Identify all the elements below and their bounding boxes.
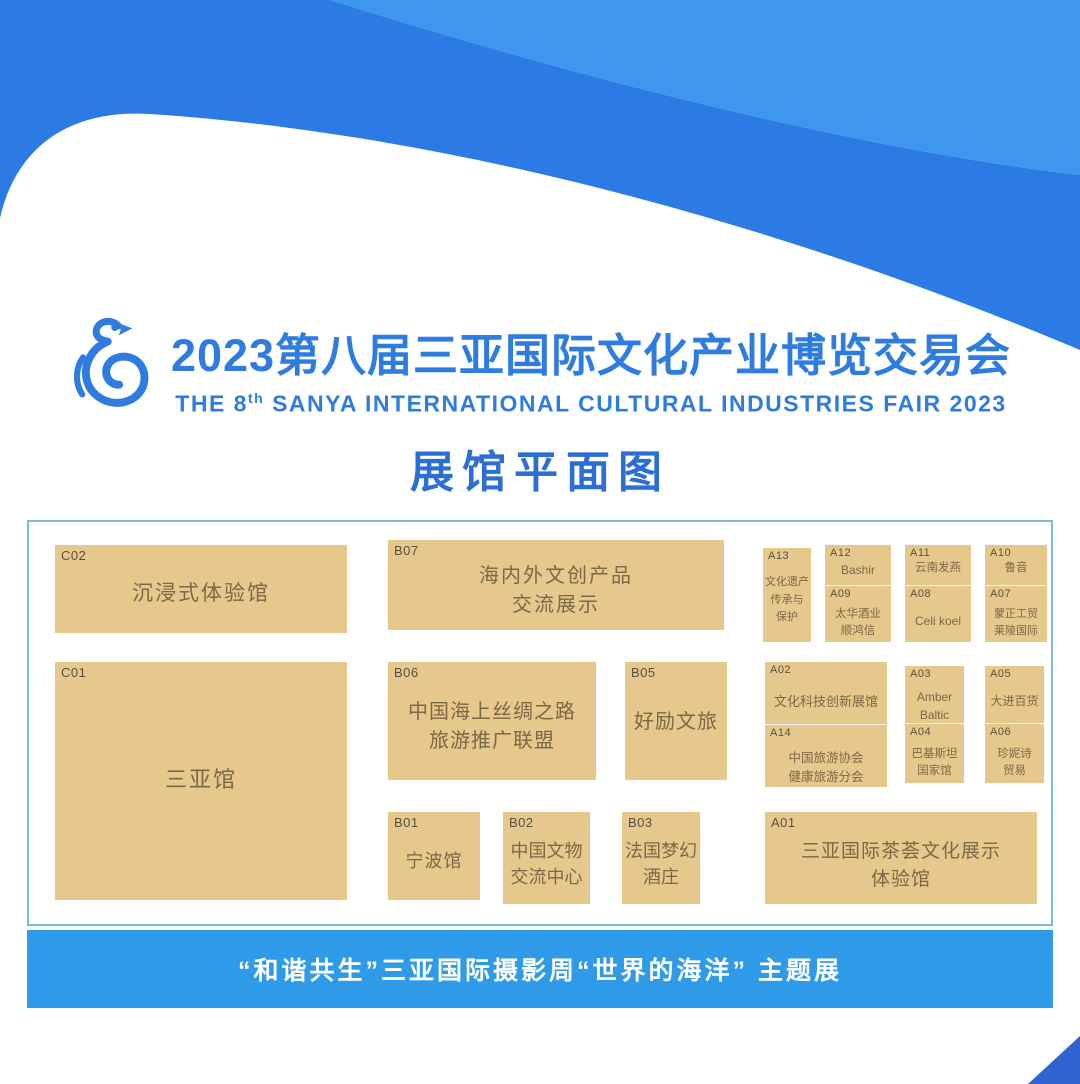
booth-name: 中国旅游协会 健康旅游分会	[765, 749, 887, 787]
booth-code: C02	[61, 548, 86, 563]
booth-name: 法国梦幻 酒庄	[622, 838, 700, 890]
booth-name: 鲁音	[985, 560, 1047, 577]
booth-code: B03	[628, 815, 653, 830]
booth-name: Celi koel	[905, 612, 971, 630]
fair-title-cn: 2023第八届三亚国际文化产业博览交易会	[171, 319, 1011, 384]
booth-b07: B07 海内外文创产品 交流展示	[388, 540, 724, 630]
booth-name: 海内外文创产品 交流展示	[388, 562, 724, 620]
booth-code: A08	[910, 588, 931, 600]
fair-title-en-rest: SANYA INTERNATIONAL CULTURAL INDUSTRIES …	[264, 390, 1007, 416]
booth-name: Bashir	[825, 561, 891, 579]
booth-name: 好励文旅	[625, 708, 727, 737]
booth-column-a10-a07: A10 鲁音 A07 蒙正工贸 莱陵国际	[985, 545, 1047, 642]
booth-name: Amber Baltic	[905, 688, 964, 724]
booth-code: B05	[631, 665, 656, 680]
booth-name: 云南发燕	[905, 560, 971, 577]
booth-column-a11-a08: A11 云南发燕 A08 Celi koel	[905, 545, 971, 642]
booth-code: A12	[830, 547, 851, 559]
booth-name: 蒙正工贸 莱陵国际	[985, 606, 1047, 639]
booth-code: B02	[509, 815, 534, 830]
theme-exhibition-banner: “和谐共生”三亚国际摄影周“世界的海洋” 主题展	[27, 930, 1053, 1008]
booth-code: A06	[990, 726, 1011, 738]
booth-b05: B05 好励文旅	[625, 662, 727, 780]
booth-code: A01	[771, 815, 796, 830]
booth-column-a12-a09: A12 Bashir A09 太华酒业 顺鸿信	[825, 545, 891, 642]
booth-name: 沉浸式体验馆	[55, 579, 347, 609]
corner-accent-triangle	[1028, 1036, 1080, 1084]
booth-a14: A14 中国旅游协会 健康旅游分会	[765, 724, 887, 787]
booth-a01: A01 三亚国际茶荟文化展示 体验馆	[765, 812, 1037, 904]
fair-title-en: THE 8th SANYA INTERNATIONAL CULTURAL IND…	[175, 390, 1006, 418]
booth-b01: B01 宁波馆	[388, 812, 480, 900]
booth-a04: A04 巴基斯坦 国家馆	[905, 723, 964, 783]
booth-a12: A12 Bashir	[825, 545, 891, 585]
booth-c02: C02 沉浸式体验馆	[55, 545, 347, 633]
booth-code: A11	[910, 547, 930, 559]
booth-name: 中国海上丝绸之路 旅游推广联盟	[388, 698, 596, 756]
booth-code: B01	[394, 815, 419, 830]
booth-c01: C01 三亚馆	[55, 662, 347, 900]
booth-name: 宁波馆	[388, 848, 480, 874]
booth-column-a03-a04: A03 Amber Baltic A04 巴基斯坦 国家馆	[905, 666, 964, 783]
booth-code: A13	[768, 550, 789, 562]
booth-code: A10	[990, 547, 1011, 559]
booth-code: A07	[990, 588, 1011, 600]
booth-name: 文化遗产 传承与 保护	[763, 574, 811, 627]
booth-column-a05-a06: A05 大进百货 A06 珍妮诗 贸易	[985, 666, 1044, 783]
booth-a11: A11 云南发燕	[905, 545, 971, 585]
booth-name: 中国文物 交流中心	[503, 838, 590, 890]
booth-name: 三亚馆	[55, 764, 347, 796]
booth-b03: B03 法国梦幻 酒庄	[622, 812, 700, 904]
booth-b02: B02 中国文物 交流中心	[503, 812, 590, 904]
booth-code: A04	[910, 726, 931, 738]
booth-a08: A08 Celi koel	[905, 585, 971, 642]
booth-name: 巴基斯坦 国家馆	[905, 746, 964, 781]
fair-title-en-pre: THE 8	[175, 390, 248, 416]
floor-plan-heading: 展馆平面图	[0, 436, 1080, 500]
booth-code: A03	[910, 668, 931, 680]
booth-column-a02-a14: A02 文化科技创新展馆 A14 中国旅游协会 健康旅游分会	[765, 662, 887, 787]
booth-a09: A09 太华酒业 顺鸿信	[825, 585, 891, 642]
fair-title-en-sup: th	[248, 390, 264, 406]
booth-a07: A07 蒙正工贸 莱陵国际	[985, 585, 1047, 642]
booth-name: 珍妮诗 贸易	[985, 746, 1044, 781]
booth-b06: B06 中国海上丝绸之路 旅游推广联盟	[388, 662, 596, 780]
booth-name: 太华酒业 顺鸿信	[825, 606, 891, 641]
fair-title-block: 2023第八届三亚国际文化产业博览交易会 THE 8th SANYA INTER…	[0, 312, 1080, 424]
booth-code: A14	[770, 727, 791, 739]
booth-a05: A05 大进百货	[985, 666, 1044, 723]
booth-name: 文化科技创新展馆	[765, 692, 887, 712]
booth-code: B07	[394, 543, 419, 558]
booth-a06: A06 珍妮诗 贸易	[985, 723, 1044, 783]
booth-code: A09	[830, 588, 851, 600]
booth-code: B06	[394, 665, 419, 680]
booth-a13: A13 文化遗产 传承与 保护	[763, 548, 811, 642]
theme-exhibition-text: “和谐共生”三亚国际摄影周“世界的海洋” 主题展	[238, 951, 842, 987]
floor-plan: C02 沉浸式体验馆 C01 三亚馆 B07 海内外文创产品 交流展示 B06 …	[27, 520, 1053, 926]
booth-code: C01	[61, 665, 86, 680]
fair-title-text: 2023第八届三亚国际文化产业博览交易会 THE 8th SANYA INTER…	[171, 319, 1011, 418]
booth-code: A02	[770, 664, 791, 676]
booth-name: 大进百货	[985, 692, 1044, 710]
booth-a03: A03 Amber Baltic	[905, 666, 964, 723]
booth-a10: A10 鲁音	[985, 545, 1047, 585]
fair-logo-phoenix-icon	[69, 312, 157, 424]
booth-name: 三亚国际茶荟文化展示 体验馆	[765, 838, 1037, 893]
booth-code: A05	[990, 668, 1011, 680]
booth-a02: A02 文化科技创新展馆	[765, 662, 887, 724]
